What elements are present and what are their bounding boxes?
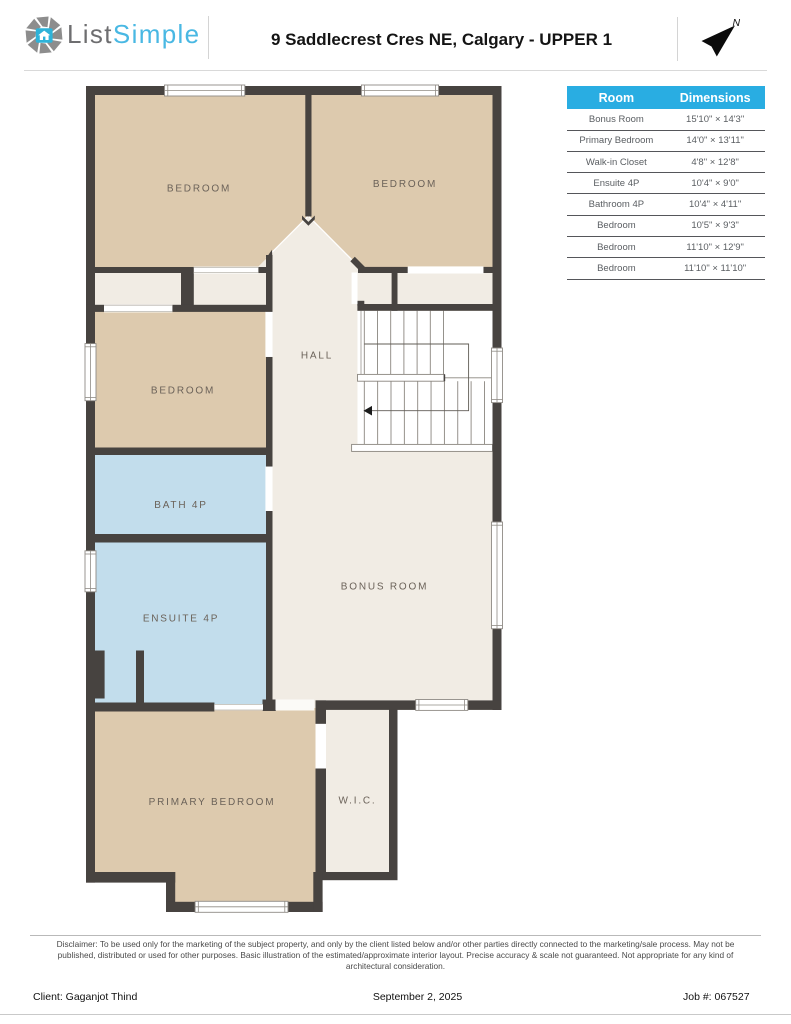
svg-text:W.I.C.: W.I.C. bbox=[338, 796, 376, 807]
svg-text:BEDROOM: BEDROOM bbox=[167, 184, 231, 195]
svg-text:ENSUITE 4P: ENSUITE 4P bbox=[143, 614, 219, 625]
svg-text:PRIMARY BEDROOM: PRIMARY BEDROOM bbox=[149, 797, 276, 808]
svg-text:HALL: HALL bbox=[301, 351, 333, 362]
svg-text:BEDROOM: BEDROOM bbox=[373, 179, 437, 190]
svg-text:BONUS ROOM: BONUS ROOM bbox=[341, 582, 428, 593]
svg-text:BATH 4P: BATH 4P bbox=[154, 500, 208, 511]
svg-text:BEDROOM: BEDROOM bbox=[151, 386, 215, 397]
